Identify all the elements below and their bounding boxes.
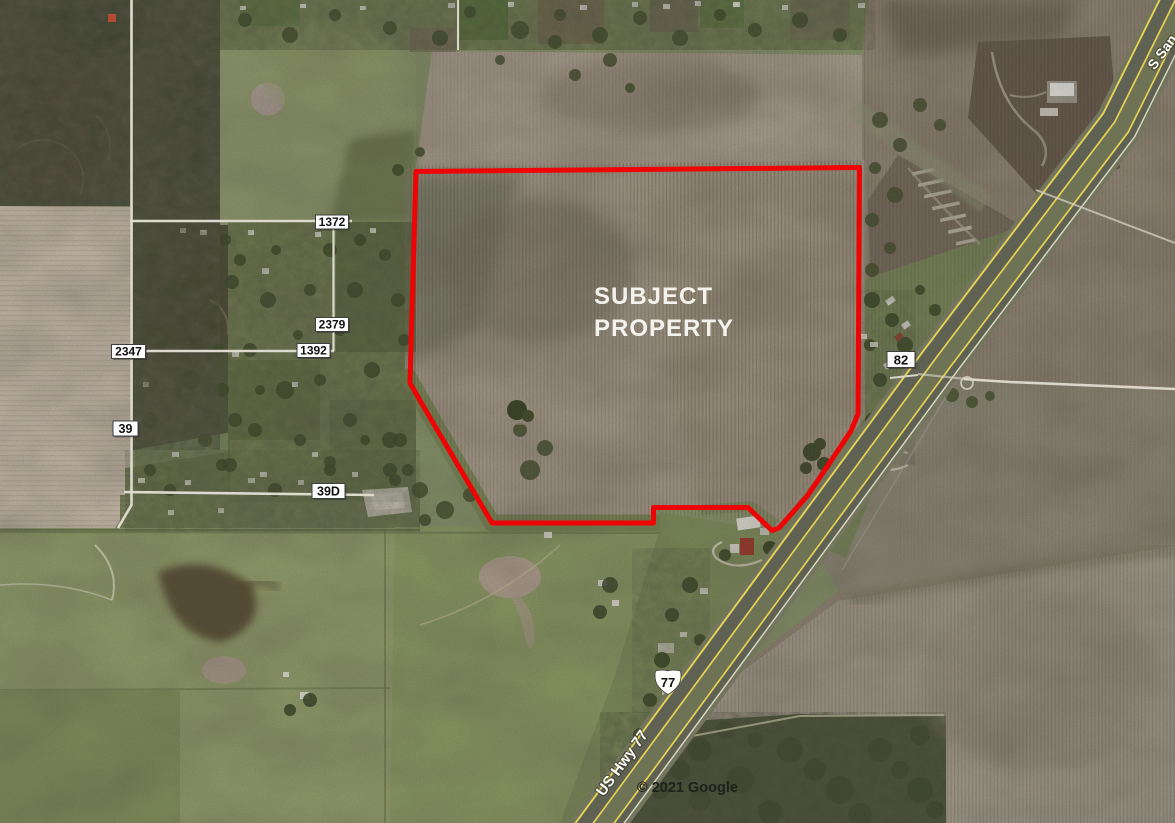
svg-text:82: 82 (894, 353, 908, 368)
svg-text:39: 39 (119, 422, 133, 436)
svg-text:SUBJECT: SUBJECT (594, 283, 713, 310)
svg-text:1392: 1392 (300, 344, 327, 358)
svg-text:77: 77 (661, 675, 675, 690)
svg-text:© 2021 Google: © 2021 Google (637, 780, 738, 796)
svg-text:2347: 2347 (115, 345, 142, 359)
svg-text:2379: 2379 (319, 318, 346, 332)
svg-text:39D: 39D (317, 485, 340, 499)
svg-text:PROPERTY: PROPERTY (594, 315, 734, 342)
svg-text:1372: 1372 (319, 215, 346, 229)
